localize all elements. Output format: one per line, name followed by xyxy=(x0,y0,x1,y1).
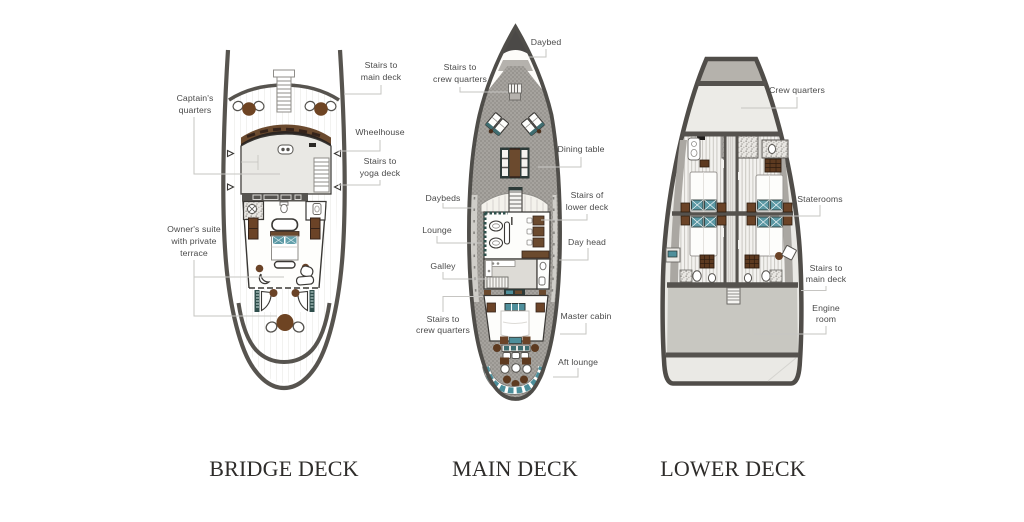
svg-text:Stairs to: Stairs to xyxy=(427,314,460,324)
svg-text:Staterooms: Staterooms xyxy=(797,194,843,204)
svg-text:Stairs to: Stairs to xyxy=(810,263,843,273)
svg-text:Lounge: Lounge xyxy=(422,225,452,235)
svg-text:Daybed: Daybed xyxy=(531,37,562,47)
svg-text:BRIDGE DECK: BRIDGE DECK xyxy=(209,456,358,481)
svg-text:main deck: main deck xyxy=(361,72,402,82)
svg-text:main deck: main deck xyxy=(806,274,847,284)
svg-text:Stairs to: Stairs to xyxy=(364,156,397,166)
svg-text:Engine: Engine xyxy=(812,303,840,313)
svg-text:Day head: Day head xyxy=(568,237,606,247)
svg-text:with private: with private xyxy=(170,236,216,246)
svg-text:LOWER DECK: LOWER DECK xyxy=(660,456,806,481)
svg-text:Daybeds: Daybeds xyxy=(426,193,462,203)
svg-text:Galley: Galley xyxy=(430,261,456,271)
svg-text:Crew quarters: Crew quarters xyxy=(769,85,825,95)
svg-text:Captain's: Captain's xyxy=(177,93,214,103)
svg-text:crew quarters: crew quarters xyxy=(416,325,470,335)
svg-text:Aft lounge: Aft lounge xyxy=(558,357,598,367)
svg-text:terrace: terrace xyxy=(180,248,208,258)
svg-text:Wheelhouse: Wheelhouse xyxy=(355,127,404,137)
svg-text:Stairs to: Stairs to xyxy=(365,60,398,70)
svg-text:Stairs of: Stairs of xyxy=(571,190,604,200)
svg-text:quarters: quarters xyxy=(179,105,212,115)
svg-text:Master cabin: Master cabin xyxy=(561,311,612,321)
svg-text:MAIN DECK: MAIN DECK xyxy=(452,456,578,481)
svg-text:Owner's suite: Owner's suite xyxy=(167,224,221,234)
svg-text:room: room xyxy=(816,314,836,324)
svg-text:yoga deck: yoga deck xyxy=(360,168,401,178)
svg-text:Dining table: Dining table xyxy=(557,144,604,154)
svg-text:Stairs to: Stairs to xyxy=(444,62,477,72)
svg-text:crew quarters: crew quarters xyxy=(433,74,487,84)
svg-text:lower deck: lower deck xyxy=(566,202,609,212)
